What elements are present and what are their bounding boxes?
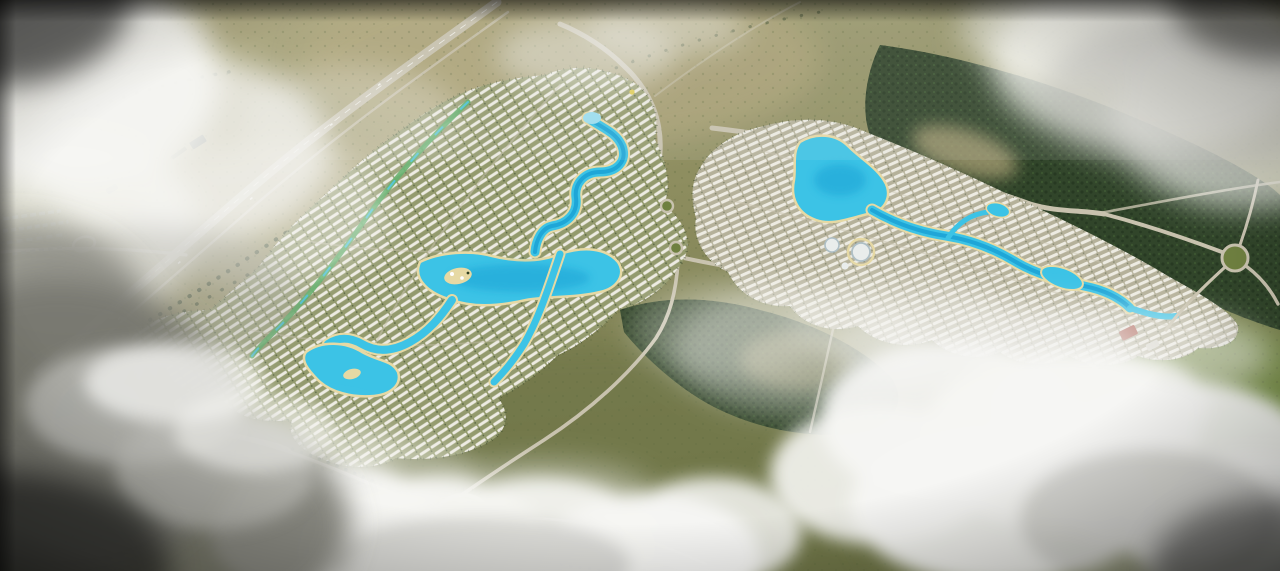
vignette-top [0, 0, 1280, 22]
vignette [0, 0, 1280, 571]
aerial-scene [0, 0, 1280, 571]
aerial-render-svg [0, 0, 1280, 571]
vignette-radial [0, 0, 1280, 571]
